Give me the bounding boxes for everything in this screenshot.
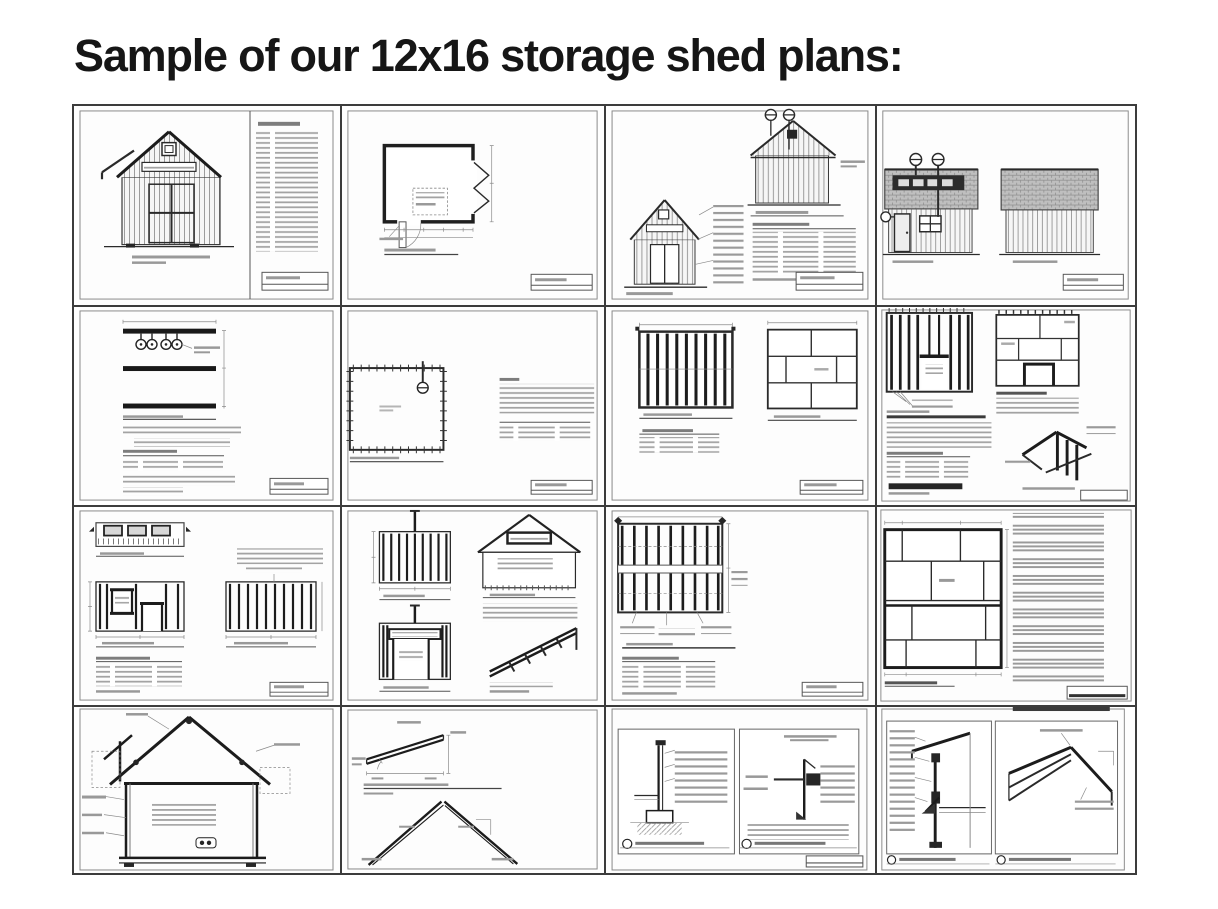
skid-foundation-drawing — [74, 307, 340, 505]
elevations-drawing — [606, 106, 875, 305]
plan-thumbnail-joists-and-sheeting — [606, 307, 877, 507]
cover-sheet-drawing — [74, 106, 340, 305]
plan-thumbnail-roof-framing — [606, 507, 877, 707]
joists-sheeting-drawing — [606, 307, 875, 505]
gable-framing-drawing — [342, 507, 604, 705]
side-elevations-drawing — [877, 106, 1135, 305]
plan-thumbnail-floor-plan — [342, 106, 606, 307]
screenshot-root: { "page": { "title": "Sample of our 12x1… — [0, 0, 1218, 909]
plan-thumbnail-skid-foundation — [74, 307, 342, 507]
plan-thumbnail-roof-sheeting — [877, 507, 1135, 707]
roof-sheeting-drawing — [877, 507, 1135, 705]
side-wall-framing-drawing — [74, 507, 340, 705]
section-details-drawing — [877, 707, 1135, 873]
foundation-details-drawing — [606, 707, 875, 873]
plan-thumbnail-elevations — [606, 106, 877, 307]
plan-thumbnail-cover-sheet — [74, 106, 342, 307]
plan-thumbnail-side-wall-framing — [74, 507, 342, 707]
floor-framing-drawing — [342, 307, 604, 505]
roof-framing-drawing — [606, 507, 875, 705]
plan-thumbnail-gable-framing — [342, 507, 606, 707]
plan-thumbnail-floor-framing — [342, 307, 606, 507]
plan-thumbnail-cross-section — [74, 707, 342, 873]
page-title: Sample of our 12x16 storage shed plans: — [74, 30, 902, 82]
plans-grid — [72, 104, 1137, 875]
plan-thumbnail-rafter-details — [342, 707, 606, 873]
rafter-details-drawing — [342, 707, 604, 873]
floor-plan-drawing — [342, 106, 604, 305]
plan-thumbnail-side-elevations — [877, 106, 1135, 307]
plan-thumbnail-foundation-details — [606, 707, 877, 873]
plan-thumbnail-wall-framing — [877, 307, 1135, 507]
plan-thumbnail-section-details — [877, 707, 1135, 873]
cross-section-drawing — [74, 707, 340, 873]
wall-framing-drawing — [877, 307, 1135, 505]
